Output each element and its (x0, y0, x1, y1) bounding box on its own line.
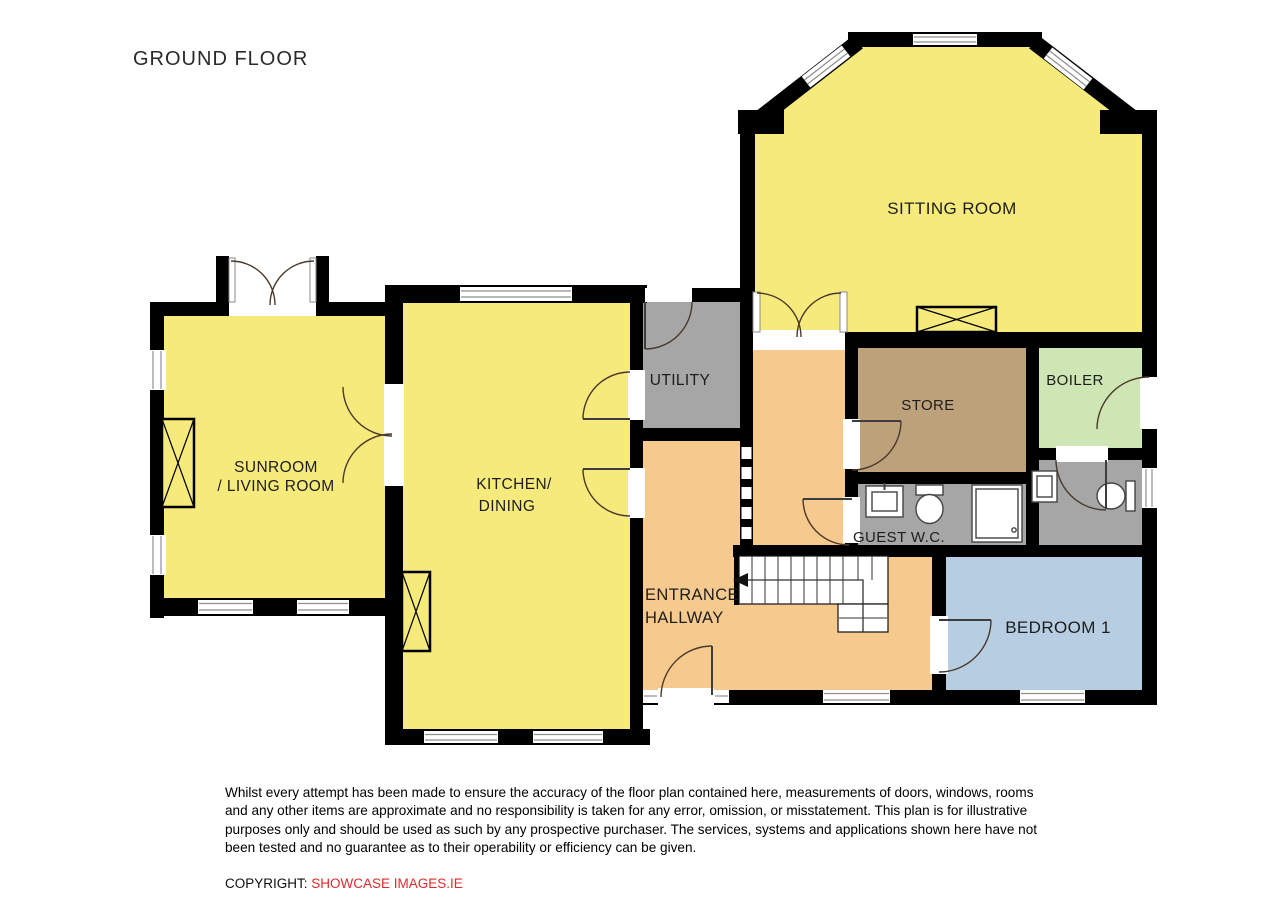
bedroom1-label: BEDROOM 1 (1005, 618, 1111, 637)
kitchen-fireplace-icon (402, 572, 430, 651)
sunroom-label-line2: / LIVING ROOM (217, 478, 334, 495)
guest-wc-basin-icon (866, 483, 903, 517)
room-boiler (1032, 340, 1144, 455)
small-wc-toilet-icon (1097, 481, 1135, 511)
copyright-line: COPYRIGHT: SHOWCASE IMAGES.IE (225, 876, 463, 891)
room-kitchen (393, 295, 638, 740)
guest-wc-label: GUEST W.C. (853, 529, 945, 546)
hallway-label-line2: HALLWAY (645, 609, 724, 627)
room-utility (640, 295, 745, 435)
sitting-room-label: SITTING ROOM (887, 199, 1016, 218)
disclaimer-text: Whilst every attempt has been made to en… (225, 784, 1051, 858)
floor-plan-page: GROUND FLOOR (0, 0, 1280, 904)
copyright-prefix: COPYRIGHT: (225, 876, 311, 891)
store-label: STORE (901, 397, 954, 414)
guest-wc-shower-icon (972, 485, 1022, 542)
small-wc-basin-icon (1032, 471, 1057, 502)
sitting-fireplace-icon (917, 307, 996, 332)
utility-label: UTILITY (650, 372, 711, 389)
floor-plan: SITTING ROOM SUNROOM / LIVING ROOM KITCH… (0, 0, 1280, 904)
sunroom-label-line1: SUNROOM (234, 459, 318, 476)
room-hallway-strip (640, 430, 744, 550)
copyright-brand: SHOWCASE IMAGES.IE (311, 876, 463, 891)
kitchen-label-line1: KITCHEN/ (476, 476, 552, 493)
sunroom-fireplace-icon (162, 419, 194, 507)
hallway-label-line1: ENTRANCE (645, 586, 739, 604)
kitchen-label-line2: DINING (479, 498, 536, 515)
room-hallway-inner (746, 345, 850, 555)
boiler-label: BOILER (1046, 372, 1103, 389)
guest-wc-toilet-icon (916, 485, 943, 524)
